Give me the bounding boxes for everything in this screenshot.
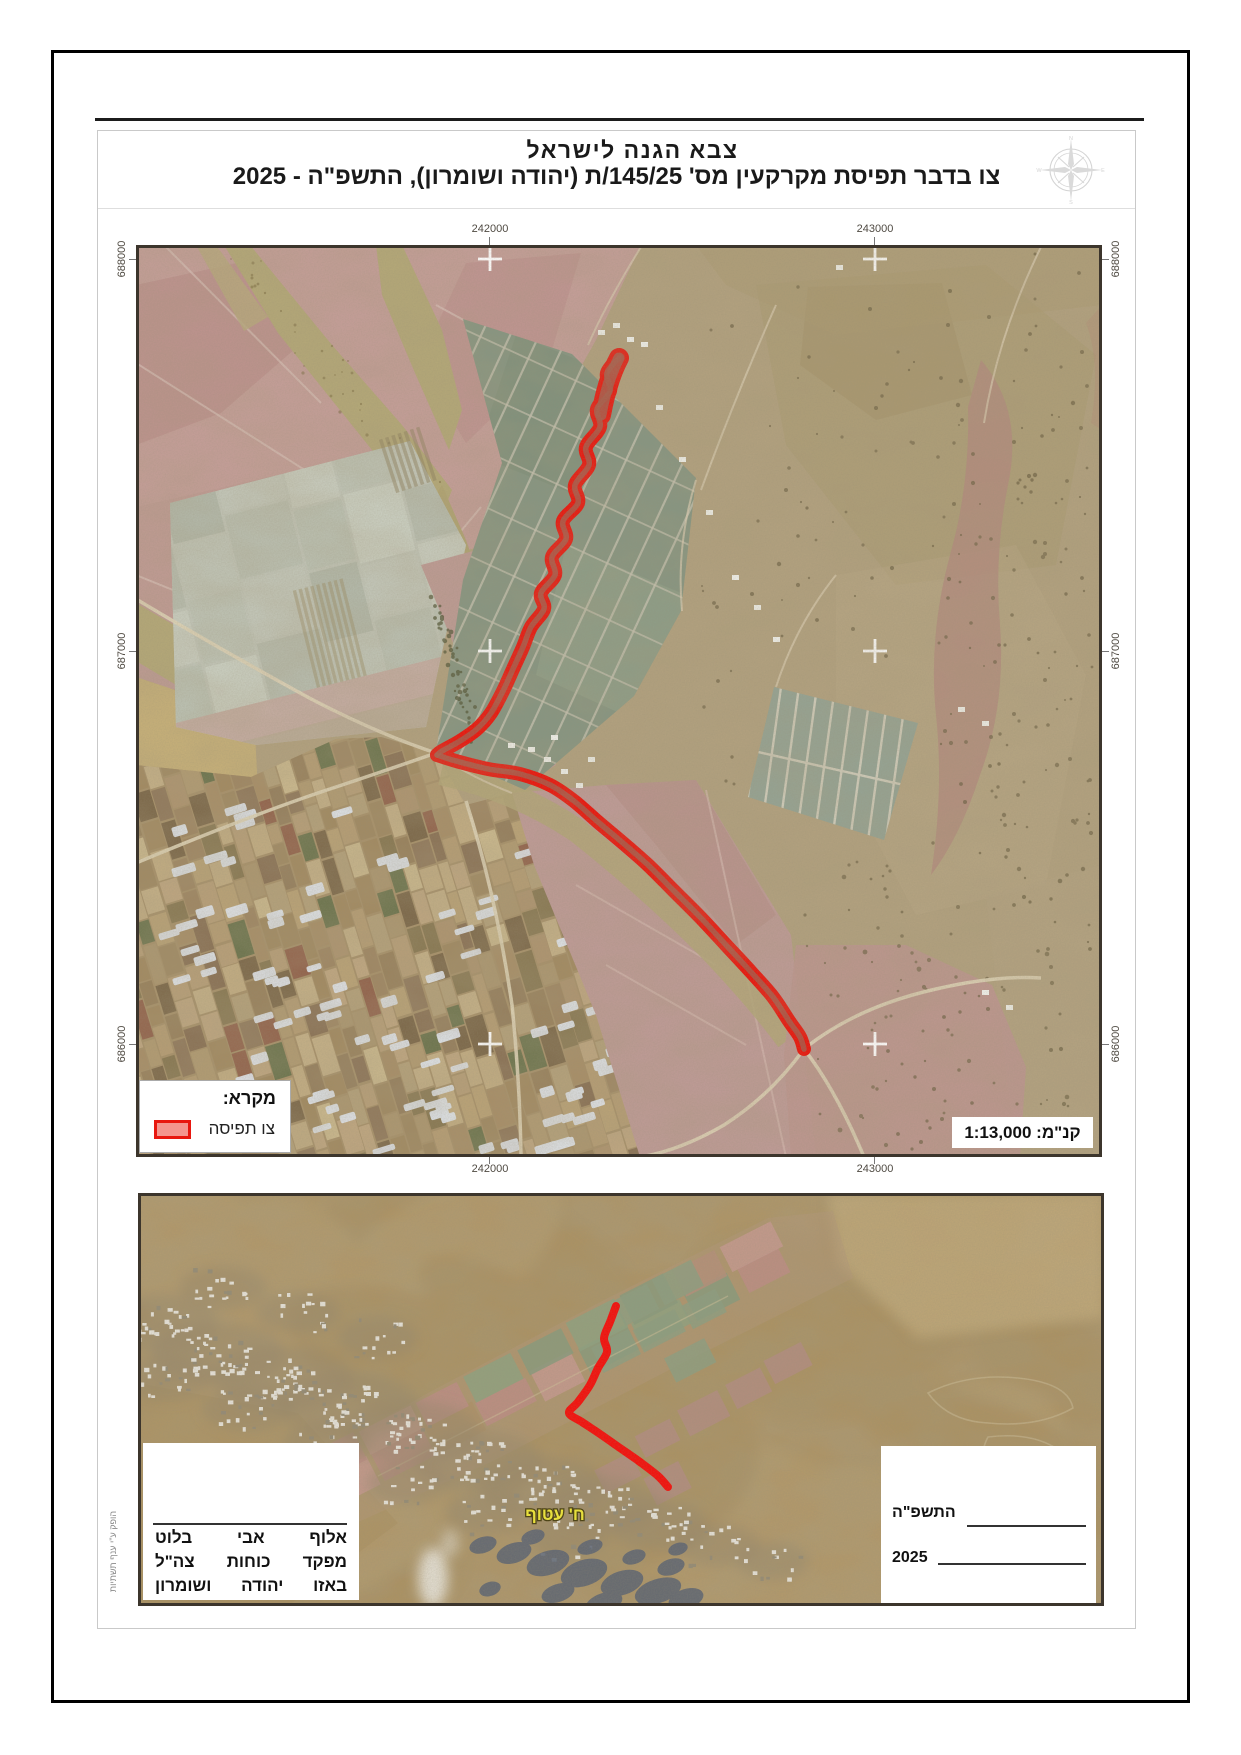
svg-text:S: S bbox=[1069, 200, 1073, 204]
svg-text:N: N bbox=[1069, 136, 1073, 142]
svg-text:E: E bbox=[1101, 168, 1105, 174]
svg-text:W: W bbox=[1036, 168, 1042, 174]
